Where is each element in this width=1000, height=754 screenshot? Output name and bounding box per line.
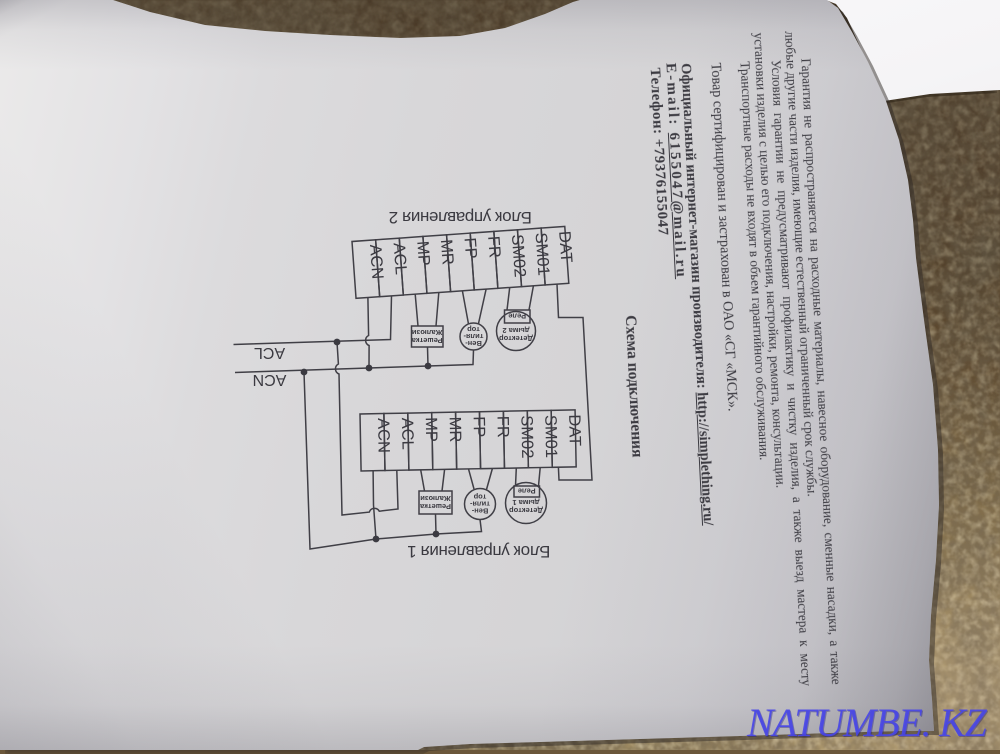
svg-text:ACN: ACN bbox=[374, 418, 393, 453]
svg-text:SM01: SM01 bbox=[541, 415, 560, 458]
svg-text:дыма 2: дыма 2 bbox=[502, 326, 529, 335]
svg-text:DAT: DAT bbox=[555, 230, 575, 263]
svg-text:Жалюзи: Жалюзи bbox=[412, 328, 444, 337]
svg-text:тор: тор bbox=[467, 325, 480, 334]
svg-text:SM01: SM01 bbox=[531, 232, 552, 276]
svg-text:FR: FR bbox=[493, 416, 511, 438]
svg-text:дыма 1: дыма 1 bbox=[512, 498, 539, 507]
svg-text:FP: FP bbox=[461, 237, 480, 259]
svg-text:Реле: Реле bbox=[508, 312, 526, 321]
svg-text:ACL: ACL bbox=[390, 242, 410, 275]
svg-text:тор: тор bbox=[473, 493, 486, 502]
svg-text:MP: MP bbox=[413, 240, 433, 266]
svg-text:MP: MP bbox=[422, 417, 440, 442]
svg-text:Блок управления 2: Блок управления 2 bbox=[389, 208, 532, 227]
svg-text:MR: MR bbox=[437, 239, 457, 266]
svg-text:Жалюзи: Жалюзи bbox=[420, 494, 452, 503]
svg-text:SM02: SM02 bbox=[508, 234, 529, 278]
svg-text:ACN: ACN bbox=[253, 371, 287, 388]
svg-text:SM02: SM02 bbox=[517, 415, 536, 458]
svg-text:DAT: DAT bbox=[565, 414, 584, 446]
svg-text:FR: FR bbox=[484, 235, 504, 258]
svg-text:ACN: ACN bbox=[366, 244, 386, 280]
svg-text:MR: MR bbox=[446, 417, 464, 443]
svg-text:FP: FP bbox=[470, 416, 488, 437]
svg-text:Реле: Реле bbox=[518, 487, 536, 496]
svg-text:Блок управления 1: Блок управления 1 bbox=[408, 542, 551, 561]
svg-text:ACL: ACL bbox=[398, 417, 417, 449]
svg-text:ACL: ACL bbox=[254, 344, 285, 361]
